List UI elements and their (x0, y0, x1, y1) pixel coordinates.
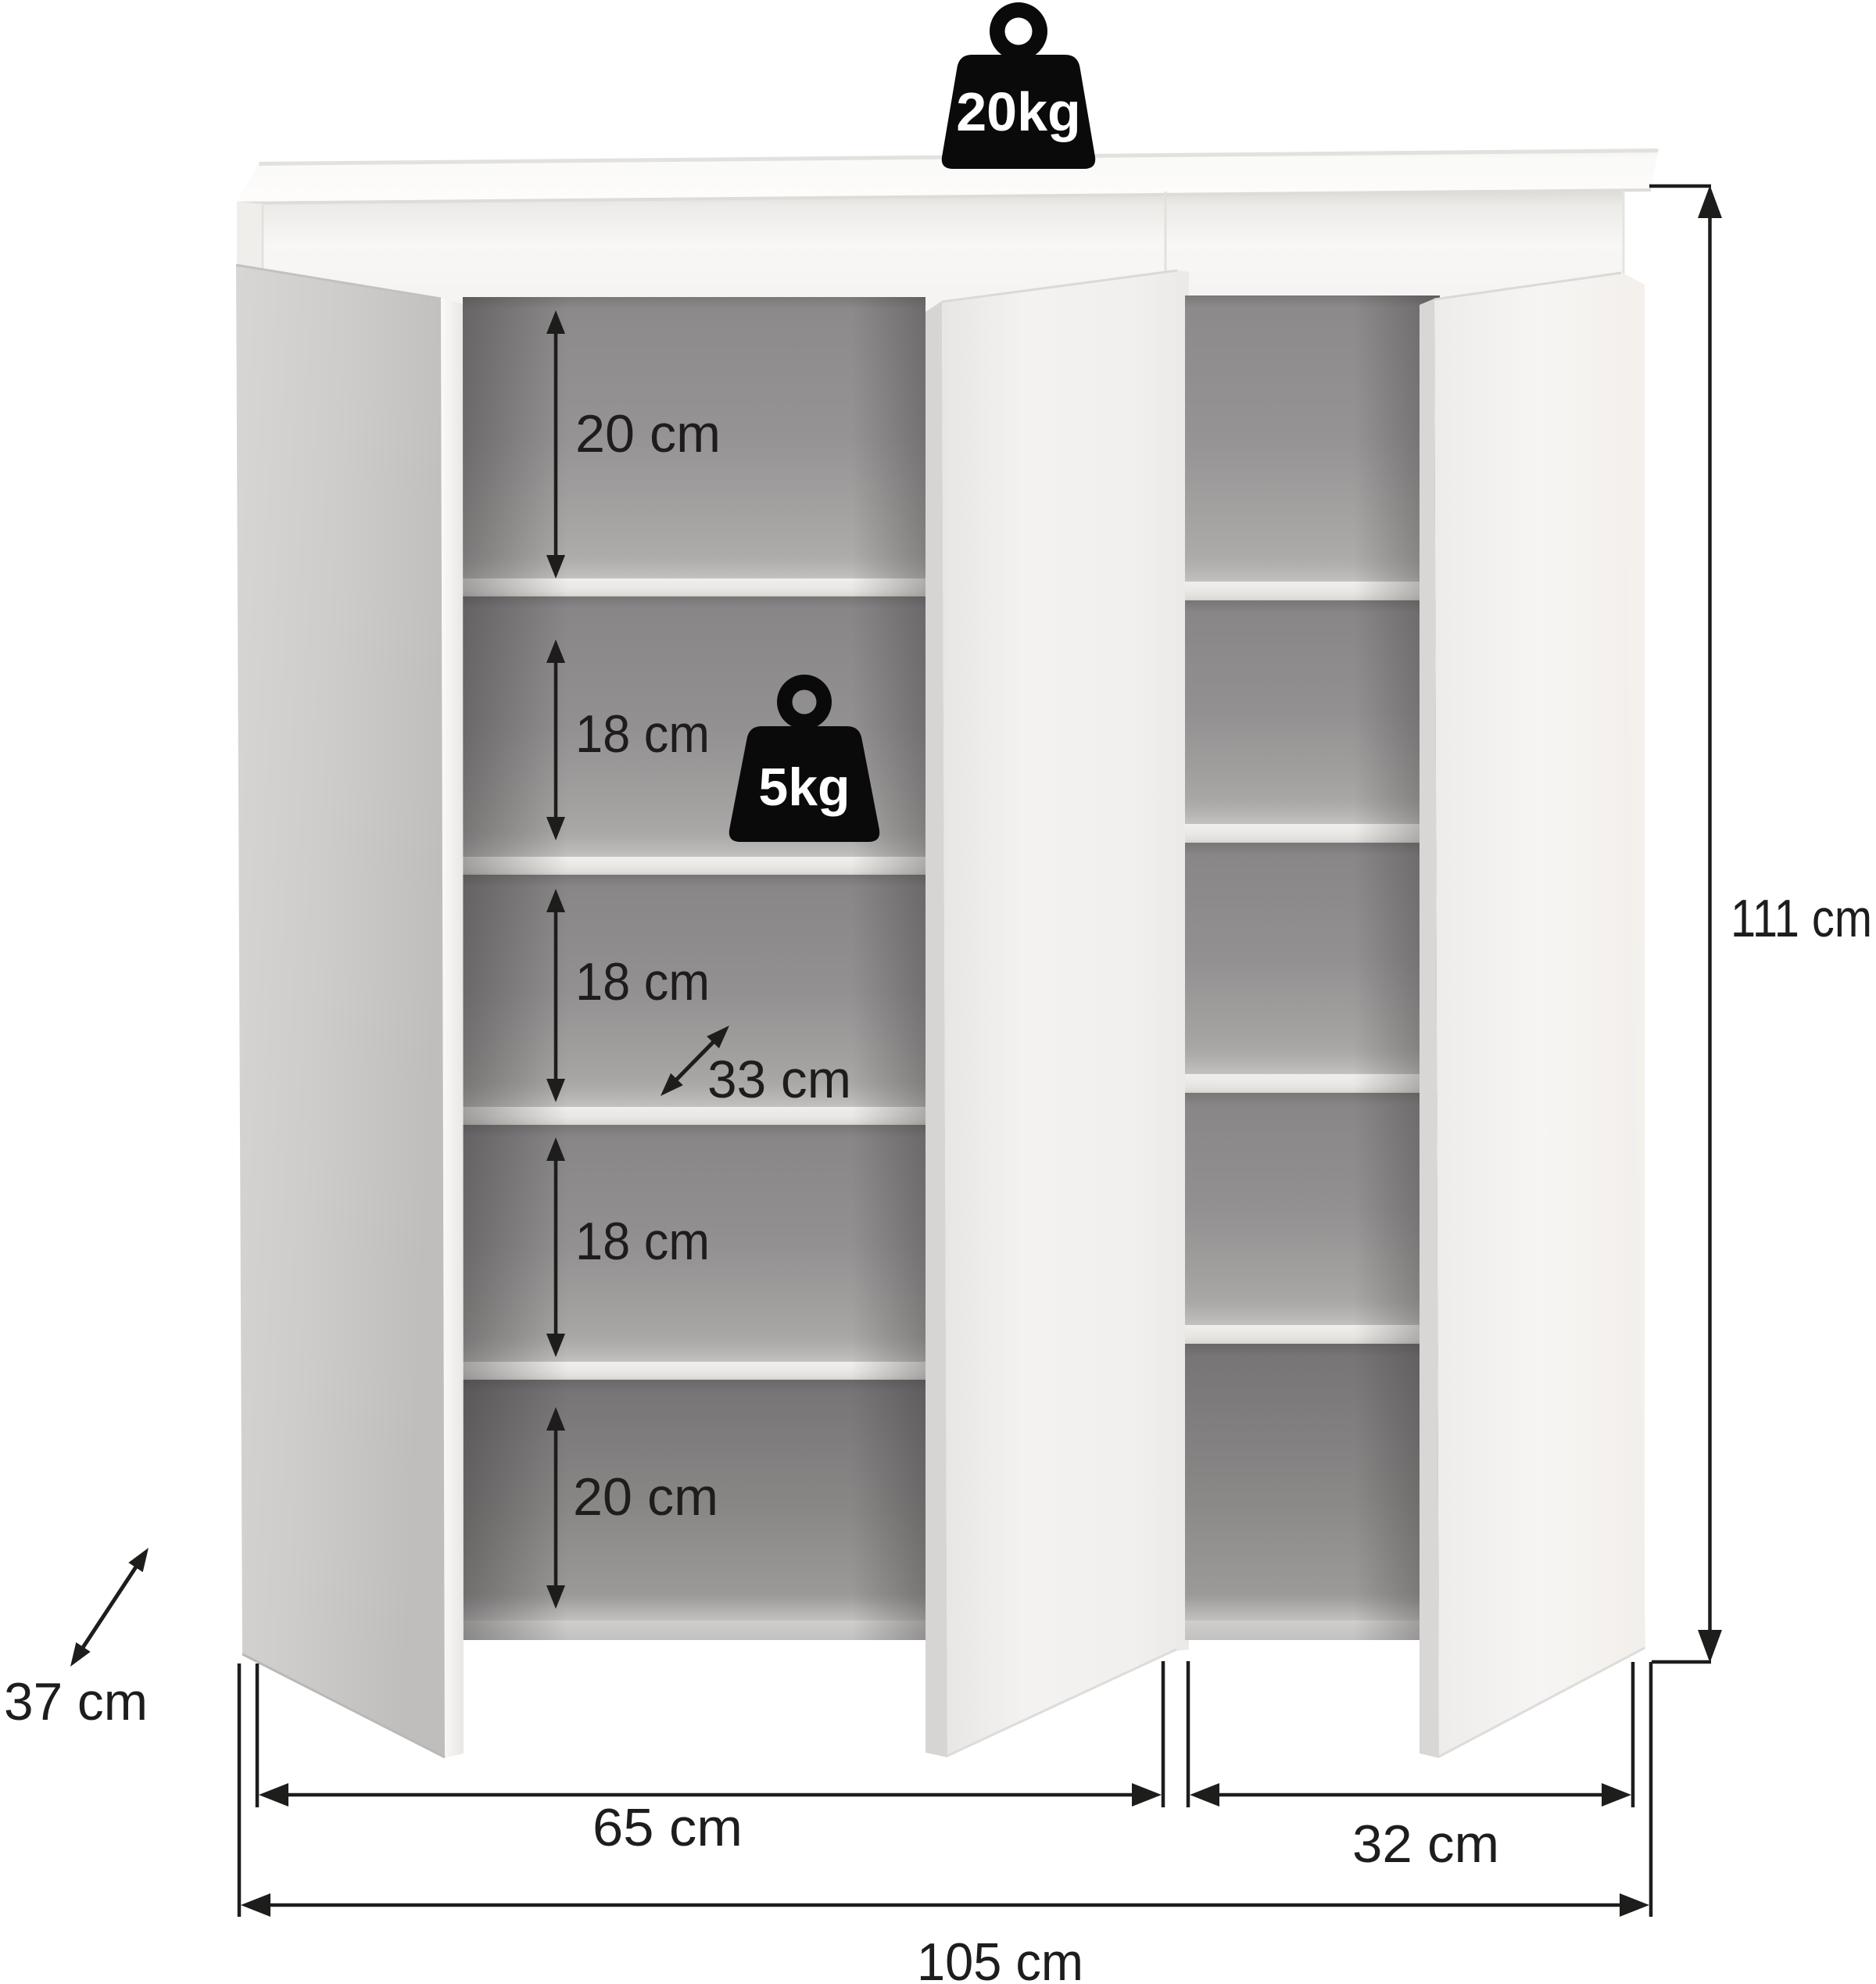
svg-text:5kg: 5kg (758, 757, 850, 817)
svg-text:20kg: 20kg (956, 81, 1081, 142)
svg-text:18 cm: 18 cm (575, 952, 710, 1012)
svg-text:37 cm: 37 cm (4, 1672, 148, 1732)
svg-text:20 cm: 20 cm (575, 404, 721, 464)
svg-text:105 cm: 105 cm (917, 1932, 1083, 1984)
svg-text:33 cm: 33 cm (707, 1050, 851, 1109)
svg-text:111 cm: 111 cm (1731, 889, 1872, 948)
svg-text:65 cm: 65 cm (593, 1798, 743, 1857)
svg-text:18 cm: 18 cm (575, 704, 710, 764)
svg-text:20 cm: 20 cm (573, 1467, 718, 1527)
svg-text:32 cm: 32 cm (1352, 1814, 1499, 1874)
svg-text:18 cm: 18 cm (575, 1212, 710, 1271)
